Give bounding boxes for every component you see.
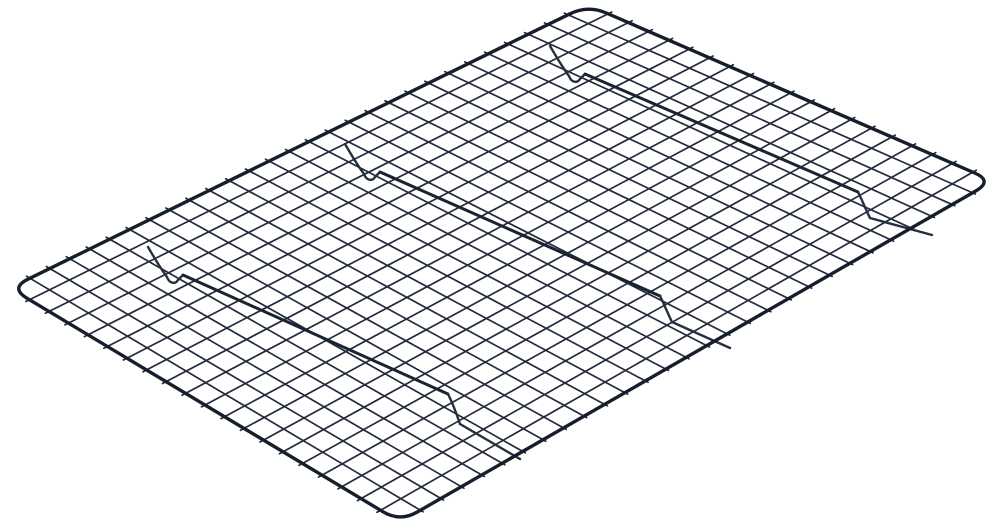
wire [672, 322, 730, 348]
wire [585, 74, 858, 192]
wire [286, 150, 689, 359]
wire [425, 81, 832, 276]
wire [345, 120, 750, 323]
wire [166, 208, 566, 429]
wire [106, 237, 505, 465]
wire [380, 172, 660, 296]
wire [564, 13, 975, 194]
wire [260, 118, 855, 443]
wire [143, 65, 733, 372]
wire [525, 33, 935, 218]
wire [146, 218, 546, 442]
support-bar-front-bend [660, 296, 672, 322]
wire [325, 130, 730, 335]
wire [123, 56, 713, 360]
wire [86, 247, 484, 477]
wire [202, 91, 795, 407]
wire [183, 275, 448, 394]
product-photo-canvas [0, 0, 1000, 529]
grid-wires-short-direction [27, 13, 976, 512]
wire [545, 23, 955, 206]
wire [460, 424, 520, 459]
wire [26, 12, 612, 302]
wire [66, 257, 464, 489]
wire [221, 100, 814, 419]
wire [465, 62, 873, 253]
wire [365, 111, 771, 312]
cooling-rack-illustration [0, 0, 1000, 529]
wire [241, 109, 835, 431]
wire [485, 52, 894, 241]
wire [405, 91, 812, 288]
wire [27, 276, 424, 512]
wire [182, 82, 774, 395]
wire [305, 140, 709, 347]
wire [163, 74, 754, 384]
